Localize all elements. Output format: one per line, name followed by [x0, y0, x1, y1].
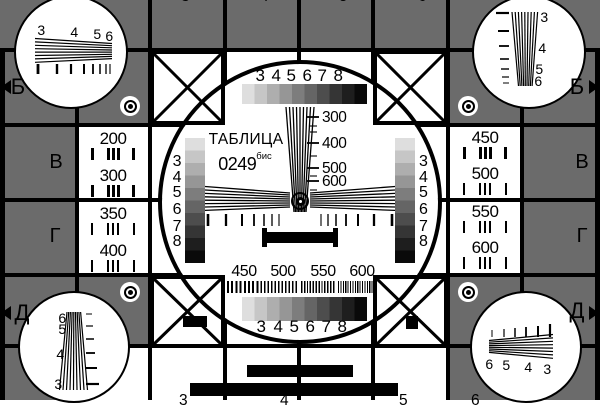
burst-bars-600	[463, 257, 507, 269]
bar-line	[91, 185, 94, 197]
target-dot	[128, 104, 133, 109]
bar-line	[479, 221, 481, 233]
grayscale-number: 4	[274, 318, 283, 335]
bar-line	[504, 147, 507, 159]
left-arrow-icon	[1, 306, 11, 320]
corner-number: 4	[524, 360, 531, 374]
burst-label-450: 450	[231, 264, 256, 280]
bar-line	[133, 223, 135, 235]
center-horizontal-wedge-left	[205, 187, 290, 211]
bar-line	[505, 183, 507, 195]
frequency-label-300: 300	[100, 167, 127, 184]
grayscale-number: 6	[160, 202, 181, 218]
grayscale-number: 7	[322, 318, 331, 335]
corner-number: 3	[540, 10, 547, 24]
grayscale-number: 6	[419, 202, 427, 218]
bar-line	[484, 257, 486, 269]
target-dot	[466, 104, 471, 109]
target-dot	[466, 290, 471, 295]
grayscale-number: 3	[256, 67, 265, 84]
frequency-label-400: 400	[100, 242, 127, 259]
grayscale-number: 5	[419, 185, 427, 201]
row-label-b-left: Б	[11, 76, 25, 98]
grayscale-number: 8	[160, 234, 181, 250]
corner-number: 6	[105, 29, 112, 43]
bar-line	[489, 221, 491, 233]
grayscale-number: 3	[257, 318, 266, 335]
corner-number: 5	[502, 358, 509, 372]
bar-line	[107, 148, 110, 160]
edge-digit-partial: 3	[179, 393, 187, 409]
center-horizontal-wedge-right	[310, 187, 395, 211]
edge-digit-partial: 3	[181, 0, 189, 5]
bar-line	[505, 221, 507, 233]
grayscale-number: 5	[290, 318, 299, 335]
bar-line	[489, 147, 492, 159]
bar-line	[484, 183, 486, 195]
burst-bars-400	[91, 260, 135, 272]
right-arrow-icon	[589, 306, 599, 320]
burst-bars-450	[463, 147, 507, 159]
corner-number: 3	[37, 23, 44, 37]
bar-line	[112, 260, 114, 272]
bar-line	[505, 257, 507, 269]
scale-label-600: 600	[322, 174, 346, 190]
bar-line	[479, 183, 481, 195]
frequency-label-500: 500	[472, 165, 499, 182]
row-label-g-left: Г	[50, 226, 61, 246]
reference-black-bar	[262, 232, 338, 243]
edge-digit-partial: 4	[280, 393, 288, 409]
bar-line	[117, 223, 119, 235]
bottom-black-bar-short	[247, 365, 353, 377]
corner-number: 3	[54, 377, 61, 391]
bar-line	[463, 183, 465, 195]
grayscale-number: 3	[160, 154, 181, 170]
burst-bars-500	[463, 183, 507, 195]
corner-number: 6	[534, 74, 541, 88]
definition-burst-500	[264, 281, 299, 293]
bar-line	[117, 185, 120, 197]
tv-test-card: { "title": {"word": "ТАБЛИЦА", "number":…	[0, 0, 600, 400]
bar-line	[489, 183, 491, 195]
bar-line	[107, 260, 109, 272]
center-burst-ticks	[208, 214, 392, 226]
grayscale-number: 8	[338, 318, 347, 335]
frequency-label-550: 550	[472, 203, 499, 220]
bar-line	[107, 185, 110, 197]
row-label-v-left: В	[49, 152, 62, 172]
grayscale-staircase-top	[242, 84, 367, 104]
frequency-label-200: 200	[100, 130, 127, 147]
scale-label-400: 400	[322, 136, 346, 152]
grayscale-number: 5	[287, 67, 296, 84]
edge-digit-partial: 6	[418, 0, 426, 5]
card-number-suffix: бис	[256, 152, 272, 162]
bar-line	[117, 148, 120, 160]
row-label-d-left: Д	[15, 302, 30, 324]
burst-label-500: 500	[270, 264, 295, 280]
black-rectangle-left	[183, 316, 207, 327]
corner-wedge-top-left	[35, 39, 112, 63]
grayscale-number: 6	[303, 67, 312, 84]
grayscale-number: 3	[419, 154, 427, 170]
bar-line	[463, 221, 465, 233]
bar-line	[117, 260, 119, 272]
bottom-black-bar-long	[190, 383, 398, 396]
burst-bars-350	[91, 223, 135, 235]
corner-number: 5	[58, 322, 65, 336]
corner-number: 4	[56, 347, 63, 361]
corner-ticks-top-left	[38, 64, 110, 74]
right-arrow-icon	[589, 80, 599, 94]
center-target-pinhole	[299, 200, 302, 203]
bar-line	[132, 185, 135, 197]
bar-line	[132, 148, 135, 160]
row-label-b-right: Б	[570, 76, 584, 98]
burst-label-600: 600	[349, 264, 374, 280]
burst-bars-200	[91, 148, 135, 160]
corner-number: 6	[485, 357, 492, 371]
edge-digit-partial: 6	[471, 393, 479, 409]
definition-burst-550	[301, 281, 336, 293]
edge-digit-partial: 5	[339, 0, 347, 5]
row-label-g-right: Г	[577, 226, 588, 246]
bar-line	[133, 260, 135, 272]
edge-digit-partial: 4	[260, 0, 268, 5]
definition-burst-450	[227, 281, 262, 293]
bar-line	[489, 257, 491, 269]
grayscale-number: 6	[306, 318, 315, 335]
bar-line	[484, 221, 486, 233]
corner-number: 4	[70, 25, 77, 39]
corner-ticks-bottom-left	[86, 314, 99, 384]
row-label-d-right: Д	[570, 300, 585, 322]
frequency-label-350: 350	[100, 205, 127, 222]
grayscale-number: 7	[318, 67, 327, 84]
bar-line	[484, 147, 487, 159]
corner-wedge-bottom-right	[489, 335, 553, 359]
burst-label-550: 550	[310, 264, 335, 280]
left-arrow-icon	[1, 80, 11, 94]
card-number-digits: 0249	[218, 153, 256, 173]
grayscale-staircase-left	[185, 138, 205, 263]
row-label-v-right: В	[575, 152, 588, 172]
bar-line	[479, 257, 481, 269]
bar-line	[112, 185, 115, 197]
burst-bars-300	[91, 185, 135, 197]
target-dot	[128, 290, 133, 295]
definition-burst-600	[338, 281, 373, 293]
card-title: ТАБЛИЦА	[209, 132, 284, 148]
bar-line	[463, 257, 465, 269]
bar-line	[112, 223, 114, 235]
grayscale-staircase-right	[395, 138, 415, 263]
burst-bars-550	[463, 221, 507, 233]
bar-line	[91, 223, 93, 235]
bar-line	[112, 148, 115, 160]
corner-ticks-top-right	[496, 13, 509, 83]
bar-line	[479, 147, 482, 159]
black-rectangle-right	[406, 316, 418, 329]
grayscale-number: 8	[419, 234, 427, 250]
bar-line	[91, 260, 93, 272]
bar-line	[91, 148, 94, 160]
frequency-label-450: 450	[472, 129, 499, 146]
scale-label-300: 300	[322, 110, 346, 126]
grayscale-number: 8	[334, 67, 343, 84]
corner-number: 5	[93, 27, 100, 41]
grayscale-number: 5	[160, 185, 181, 201]
bar-line	[107, 223, 109, 235]
card-number: 0249 бис	[218, 153, 272, 173]
bar-line	[463, 147, 466, 159]
corner-number: 3	[543, 362, 550, 376]
corner-number: 4	[538, 41, 545, 55]
frequency-label-600: 600	[472, 239, 499, 256]
grayscale-number: 4	[272, 67, 281, 84]
edge-digit-partial: 5	[399, 393, 407, 409]
